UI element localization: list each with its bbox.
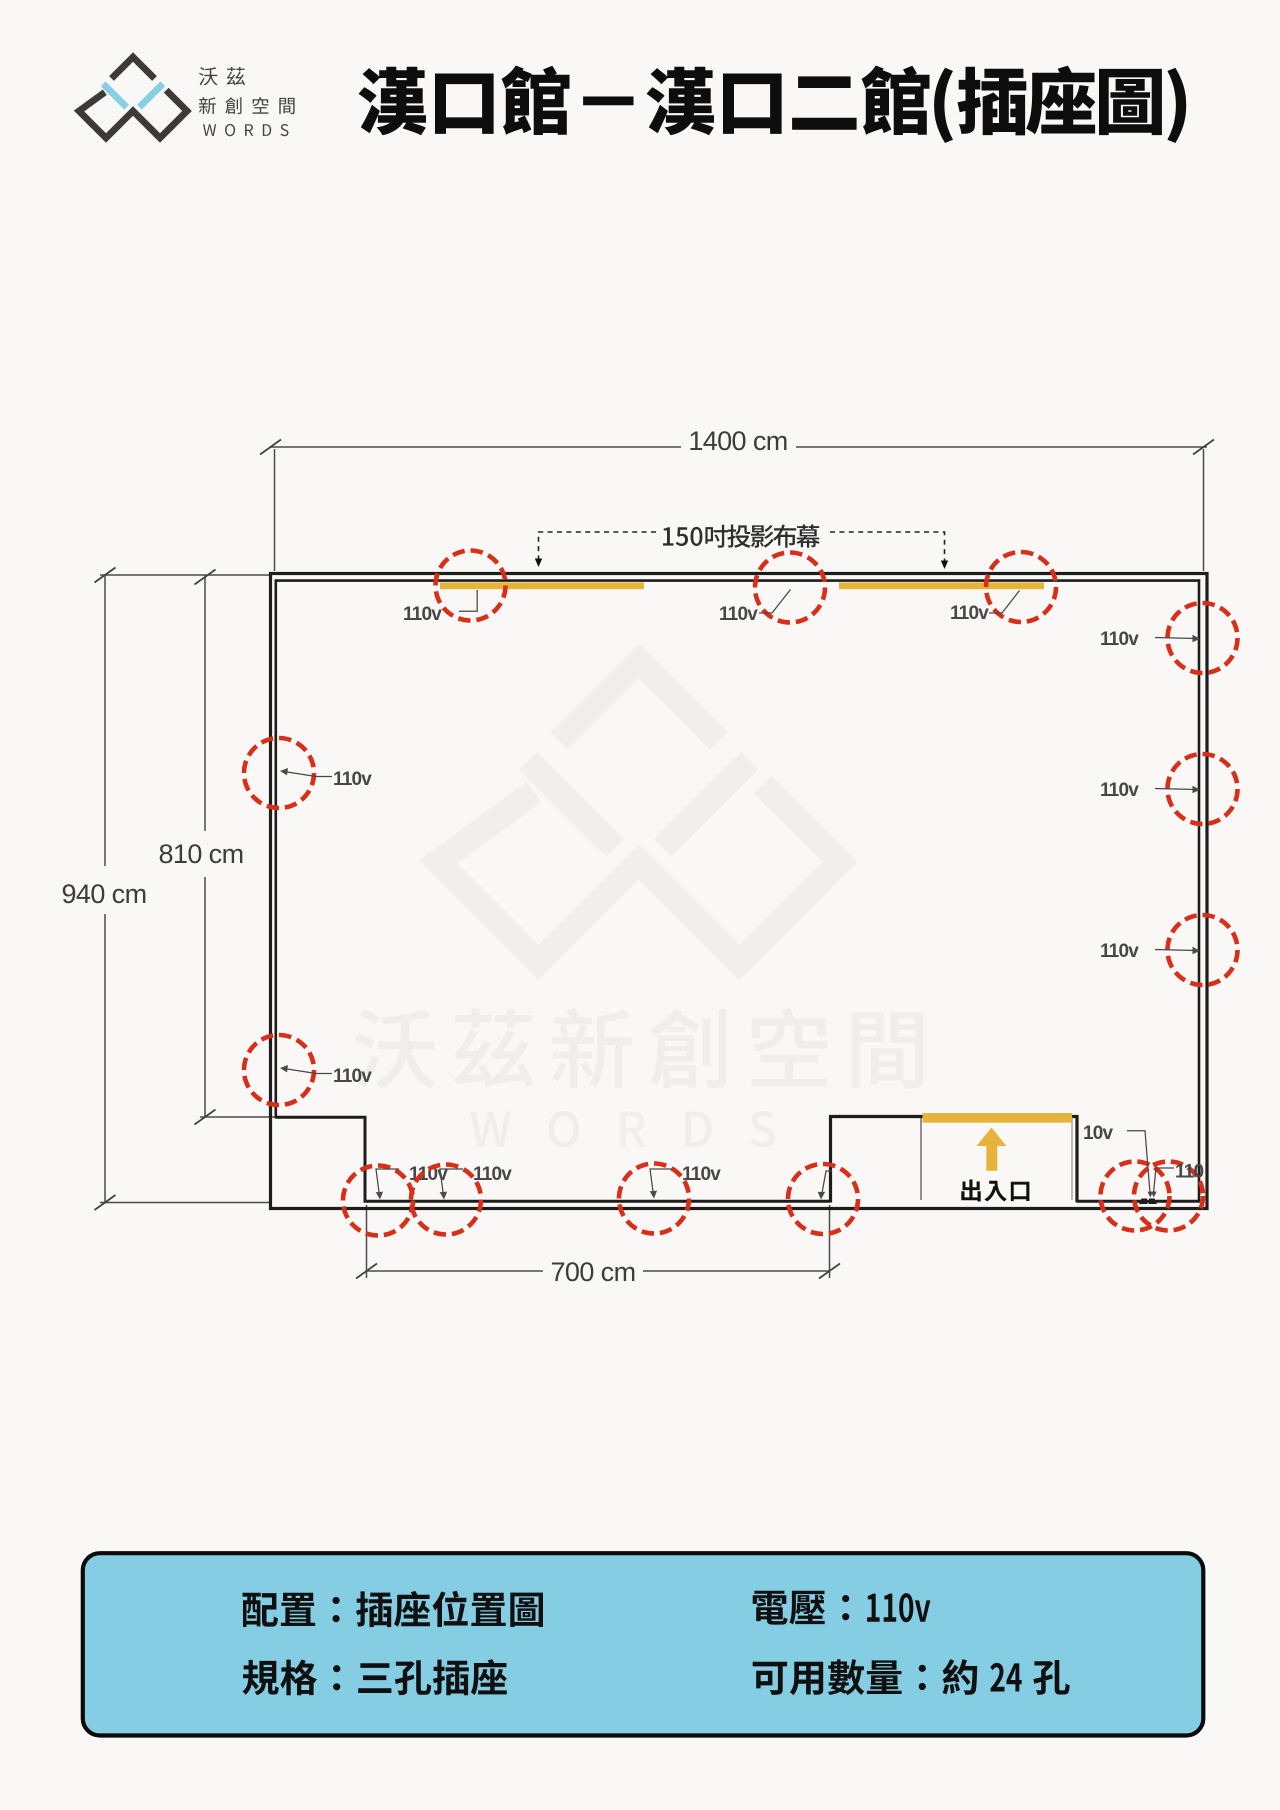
svg-text:110v: 110v (473, 1164, 512, 1185)
svg-text:940 cm: 940 cm (62, 879, 147, 909)
svg-text:110v: 110v (403, 604, 442, 625)
svg-text:110v: 110v (719, 604, 758, 625)
svg-text:110v: 110v (1100, 780, 1139, 801)
svg-text:110v: 110v (682, 1164, 721, 1185)
svg-text:110v: 110v (333, 1066, 372, 1087)
svg-text:110v: 110v (1100, 629, 1139, 650)
svg-text:700 cm: 700 cm (551, 1257, 636, 1287)
svg-text:10v: 10v (1083, 1123, 1114, 1144)
svg-text:110v: 110v (1100, 941, 1139, 962)
svg-text:810 cm: 810 cm (159, 839, 244, 869)
svg-text:110v: 110v (333, 769, 372, 790)
svg-text:110: 110 (1175, 1162, 1203, 1183)
svg-text:1400 cm: 1400 cm (688, 426, 787, 456)
svg-text:110v: 110v (950, 603, 989, 624)
